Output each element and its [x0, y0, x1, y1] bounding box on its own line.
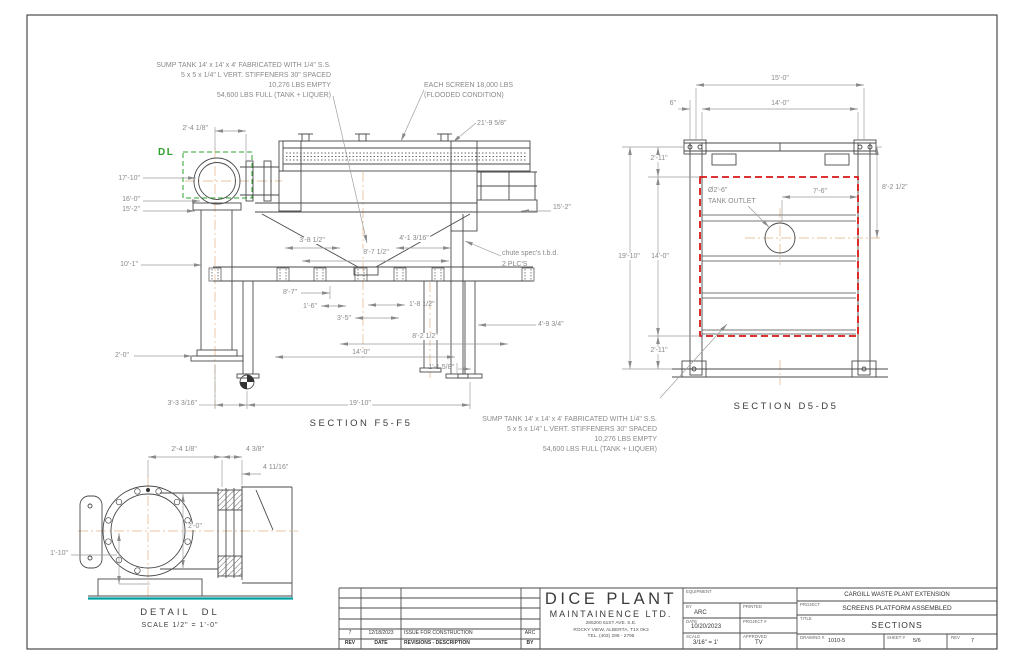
dim-14-0-f5: 14'-0": [351, 349, 371, 356]
dim-dl-4-38: 4 3/8": [246, 446, 264, 453]
note-screen-weight-line1: EACH SCREEN 18,000 LBS: [424, 82, 513, 89]
sheet-number-label: SHEET #: [887, 636, 905, 640]
dim-d5-15-0: 15'-0": [770, 75, 790, 82]
detail-ref-dl: DL: [158, 148, 174, 158]
company-address-1: 285200 61ST AVE. S.E.: [586, 622, 637, 627]
title-section-d5: SECTION D5-D5: [734, 402, 839, 412]
note-chute-line1: chute spec's t.b.d.: [502, 250, 558, 257]
dim-8-7-half: 8'-7 1/2": [362, 249, 390, 256]
by-value: ARC: [694, 610, 707, 616]
company-name: DICE PLANT: [545, 591, 677, 608]
title-detail-dl: DETAIL DL: [140, 608, 220, 618]
scale-value: 3/16" = 1': [693, 640, 718, 646]
note-sump-top-line1: SUMP TANK 14' x 14' x 4' FABRICATED WITH…: [156, 62, 331, 69]
dim-dl-2-0: 2'-0": [187, 523, 203, 530]
dim-dl-4-1116: 4 11/16": [263, 464, 288, 471]
approved-label: APPROVED: [743, 635, 767, 639]
dim-1-6: 1'-6": [303, 303, 317, 310]
dim-15-2-right: 15'-2": [553, 204, 571, 211]
project-label: PROJECT: [800, 603, 820, 607]
approved-value: TV: [755, 640, 763, 646]
dim-d5-6in: 6": [670, 100, 676, 107]
rev-number: 7: [349, 631, 352, 636]
note-sump-top-line2: 5 x 5 x 1/4" L VERT. STIFFENERS 30" SPAC…: [181, 72, 331, 79]
dim-elbow-offset: 2'-4 1/8": [182, 125, 208, 132]
company-phone: TEL. (403) 286 - 2795: [588, 635, 635, 640]
by-col-header: BY: [527, 641, 534, 646]
printed-label: PRINTED: [743, 605, 762, 609]
dim-dl-2-4-18: 2'-4 1/8": [170, 446, 198, 453]
dim-4-1-316: 4'-1 3/16": [398, 235, 430, 242]
client-name: CARGILL WASTE PLANT EXTENSION: [844, 592, 949, 598]
dim-dl-1-10: 1'-10": [50, 550, 68, 557]
description-col-header: REVISIONS - DESCRIPTION: [404, 641, 470, 646]
dim-1-8-half: 1'-8 1/2": [409, 301, 435, 308]
dim-d5-19-10: 19'-10": [617, 253, 641, 260]
note-sump-bottom-line3: 10,276 LBS EMPTY: [594, 436, 657, 443]
title-detail-dl-scale: SCALE 1/2" = 1'-0": [141, 622, 218, 629]
dim-8-2-half-f5: 8'-2 1/2": [411, 333, 439, 340]
dim-d5-2-11-top: 2'-11": [649, 155, 668, 162]
title-label: TITLE: [800, 617, 812, 621]
note-tank-outlet-line2: TANK OUTLET: [708, 198, 756, 205]
dim-3-3-316: 3'-3 3/16": [167, 400, 197, 407]
note-sump-top-line4: 54,600 LBS FULL (TANK + LIQUER): [217, 92, 331, 99]
date-value: 10/20/2023: [691, 624, 721, 630]
note-tank-outlet-line1: Ø2'-6": [708, 187, 727, 194]
dim-height-10-1: 10'-1": [120, 261, 138, 268]
title-section-f5: SECTION F5-F5: [310, 419, 413, 429]
note-chute-line2: 2 PLC'S: [502, 261, 527, 268]
equipment-label: EQUIPMENT: [686, 590, 712, 594]
dim-19-10-f5: 19'-10": [348, 400, 372, 407]
dim-d5-8-2-half: 8'-2 1/2": [882, 184, 908, 191]
rev-description: ISSUE FOR CONSTRUCTION: [404, 631, 473, 636]
dim-d5-14-0-left: 14'-0": [650, 253, 670, 260]
project-value: SCREENS PLATFORM ASSEMBLED: [842, 606, 951, 613]
dim-1-1-58: 1'-1 5/8": [428, 364, 454, 371]
project-number-label: PROJECT #: [743, 620, 767, 624]
dim-8-7: 8'-7": [283, 289, 297, 296]
company-address-2: ROCKY VIEW, ALBERTA, T1X 0K3: [573, 629, 648, 634]
company-name-2: MAINTAINENCE LTD.: [550, 610, 673, 619]
note-sump-bottom-line2: 5 x 5 x 1/4" L VERT. STIFFENERS 30" SPAC…: [507, 426, 657, 433]
sheet-number: 5/6: [913, 639, 921, 645]
drawing-sheet: SUMP TANK 14' x 14' x 4' FABRICATED WITH…: [0, 0, 1024, 663]
dim-3-8-half: 3'-8 1/2": [298, 237, 326, 244]
drawing-number: 1010-5: [828, 639, 845, 645]
dim-4-9-34: 4'-9 3/4": [538, 321, 564, 328]
note-sump-bottom-line1: SUMP TANK 14' x 14' x 4' FABRICATED WITH…: [482, 416, 657, 423]
note-screen-weight-line2: (FLOODED CONDITION): [424, 92, 504, 99]
dim-height-16-0: 16'-0": [122, 196, 140, 203]
drawing-number-label: DRAWING #.: [800, 636, 825, 640]
annotation-layer: SUMP TANK 14' x 14' x 4' FABRICATED WITH…: [0, 0, 1024, 663]
dim-height-15-2: 15'-2": [122, 206, 140, 213]
rev-col-header: REV: [345, 641, 355, 646]
dim-machine-length: 21'-9 5/8": [477, 120, 507, 127]
note-sump-top-line3: 10,276 LBS EMPTY: [268, 82, 331, 89]
by-label: BY: [686, 605, 692, 609]
drawing-title: SECTIONS: [871, 621, 922, 630]
note-sump-bottom-line4: 54,600 LBS FULL (TANK + LIQUER): [543, 446, 657, 453]
rev-date: 12/18/2023: [368, 631, 393, 636]
dim-d5-2-11-bottom: 2'-11": [649, 347, 668, 354]
date-col-header: DATE: [374, 641, 387, 646]
dim-d5-14-0-top: 14'-0": [770, 100, 790, 107]
rev-by: ARC: [525, 631, 536, 636]
dim-height-17-10: 17'-10": [118, 175, 140, 182]
rev-label: REV: [951, 636, 960, 640]
dim-3-5: 3'-5": [337, 315, 351, 322]
dim-d5-7-6: 7'-6": [812, 188, 828, 195]
dim-flange-2-0: 2'-0": [115, 352, 129, 359]
scale-label: SCALE: [686, 635, 700, 639]
rev-value: 7: [971, 639, 974, 645]
